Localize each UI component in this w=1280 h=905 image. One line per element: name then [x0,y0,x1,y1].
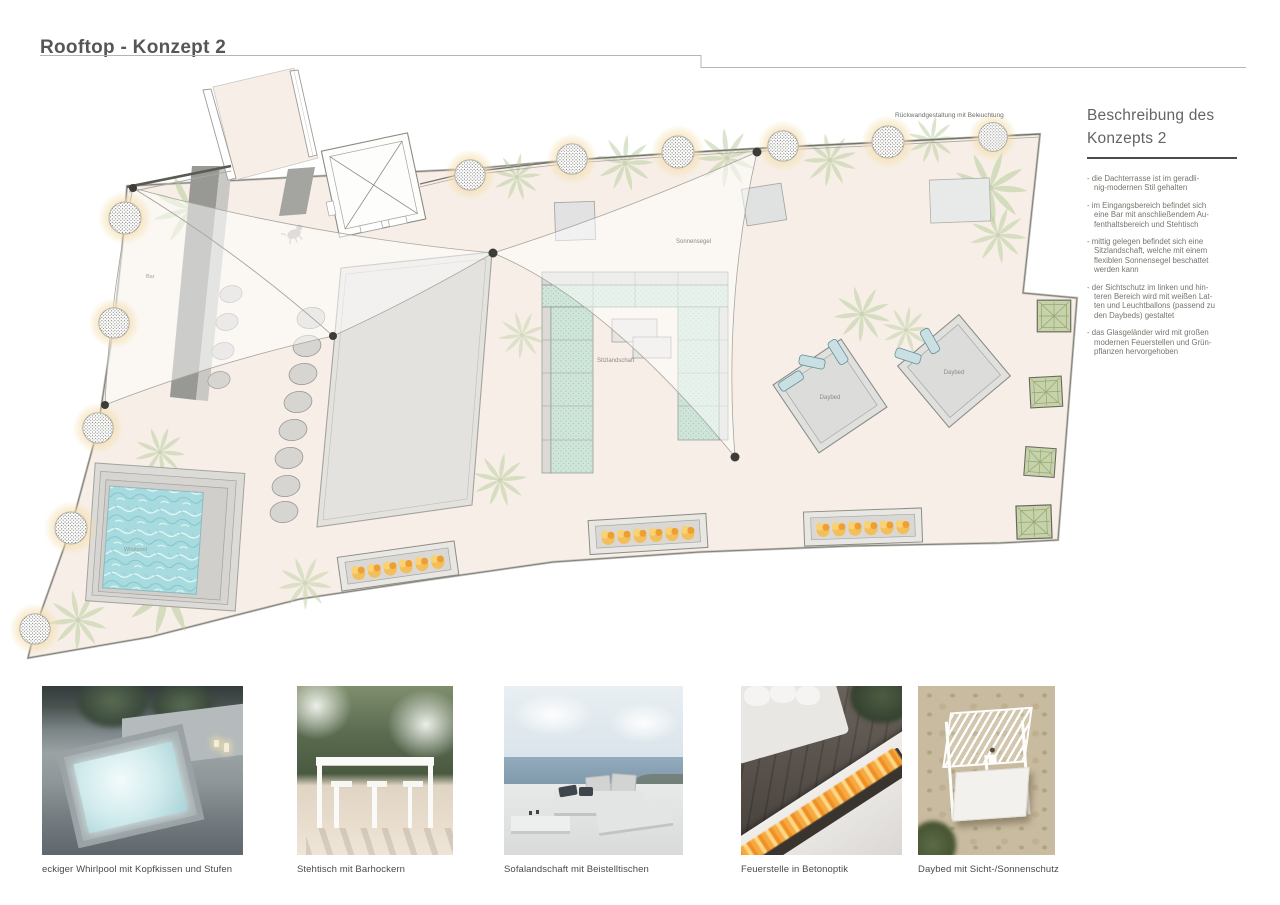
photo5-person-head [990,747,995,752]
photo4-pillow [796,686,820,705]
photo2-stool [367,781,387,788]
photo-caption: Feuerstelle in Betonoptik [741,864,848,875]
photo4-pillow [744,686,770,706]
photo3-cup [536,810,539,814]
photo2-stool [403,781,423,788]
description-bullet: - im Eingangsbereich befindet sich eine … [1087,201,1247,229]
photo-caption: Sofalandschaft mit Beistelltischen [504,864,649,875]
photo3-pillow [579,787,593,795]
back-wall-screen [929,178,990,223]
photo-caption: Daybed mit Sicht-/Sonnenschutz [918,864,1059,875]
description-bullet: - der Sichtschutz im linken und hin- ter… [1087,283,1247,321]
photo1-candle [224,743,229,752]
daybed-1-label: Daybed [820,395,841,401]
sitzlandschaft-label: Sitzlandschaft [597,358,635,364]
description-title-line1: Beschreibung des [1087,104,1247,127]
description-bullet: - die Dachterrasse ist im geradli- nig-m… [1087,174,1247,193]
whirlpool [86,463,245,611]
photo2-stool-leg [334,787,339,828]
sonnensegel-label: Sonnensegel [676,239,711,245]
photo5-canopy [944,707,1031,824]
photo-sofalandschaft [504,686,683,855]
description-panel: Beschreibung des Konzepts 2 - die Dachte… [1087,104,1247,365]
photo5-mattress [952,767,1029,821]
photo1-candle [214,740,219,747]
description-title-line2: Konzepts 2 [1087,127,1247,150]
photo2-table-leg [317,765,322,828]
bar-label: Bar [146,274,155,280]
fire-pit-3 [803,508,922,546]
photo2-shadows [306,828,453,855]
photo2-table [316,757,435,765]
photo5-person [989,754,998,764]
photo-feuerstelle [741,686,902,855]
photo2-stool-leg [408,787,413,828]
title-rule [40,56,1246,68]
description-bullet: - das Glasgeländer wird mit großen moder… [1087,328,1247,356]
whirlpool-label: Whirlpool [124,547,147,553]
photo3-cup [529,811,532,815]
photo2-stool [331,781,351,788]
photo-daybed [918,686,1055,855]
photo4-pillow [770,686,796,703]
photo2-table-leg [428,765,433,828]
photo2-stool-leg [372,787,377,828]
back-wall-label: Rückwandgestaltung mit Beleuchtung [895,112,1004,119]
concept-board: Rooftop - Konzept 2 [0,0,1280,905]
photo3-coffee-table [511,816,570,831]
photo-whirlpool [42,686,243,855]
photo3-cloud [513,693,594,737]
description-rule [1087,157,1237,159]
daybed-2-label: Daybed [944,370,965,376]
photo-stehtisch [297,686,453,855]
photo-caption: Stehtisch mit Barhockern [297,864,405,875]
photo-caption: eckiger Whirlpool mit Kopfkissen und Stu… [42,864,232,875]
description-bullet: - mittig gelegen befindet sich eine Sitz… [1087,237,1247,275]
fire-pit-2 [588,513,708,554]
